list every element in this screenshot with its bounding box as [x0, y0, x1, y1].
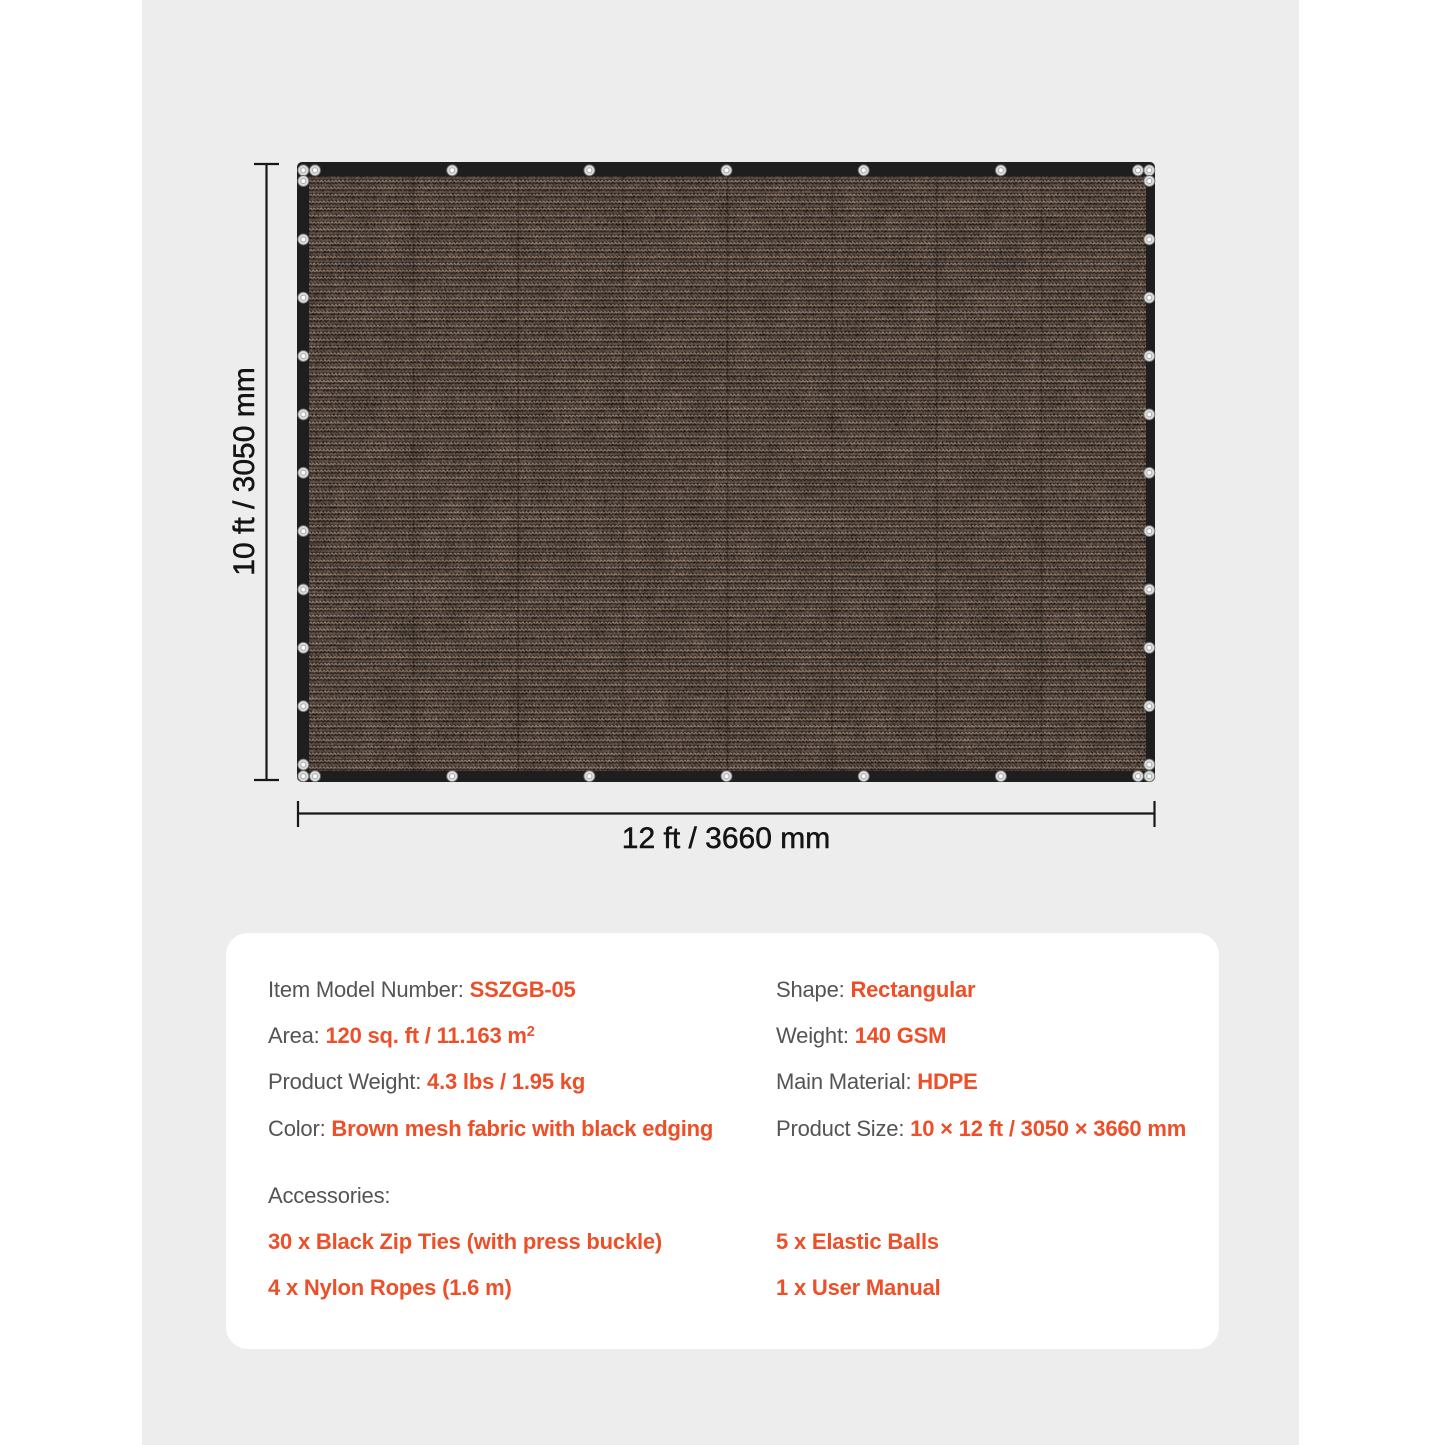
svg-text:12 ft / 3660 mm: 12 ft / 3660 mm	[622, 822, 830, 855]
svg-text:10 ft / 3050 mm: 10 ft / 3050 mm	[228, 367, 261, 575]
